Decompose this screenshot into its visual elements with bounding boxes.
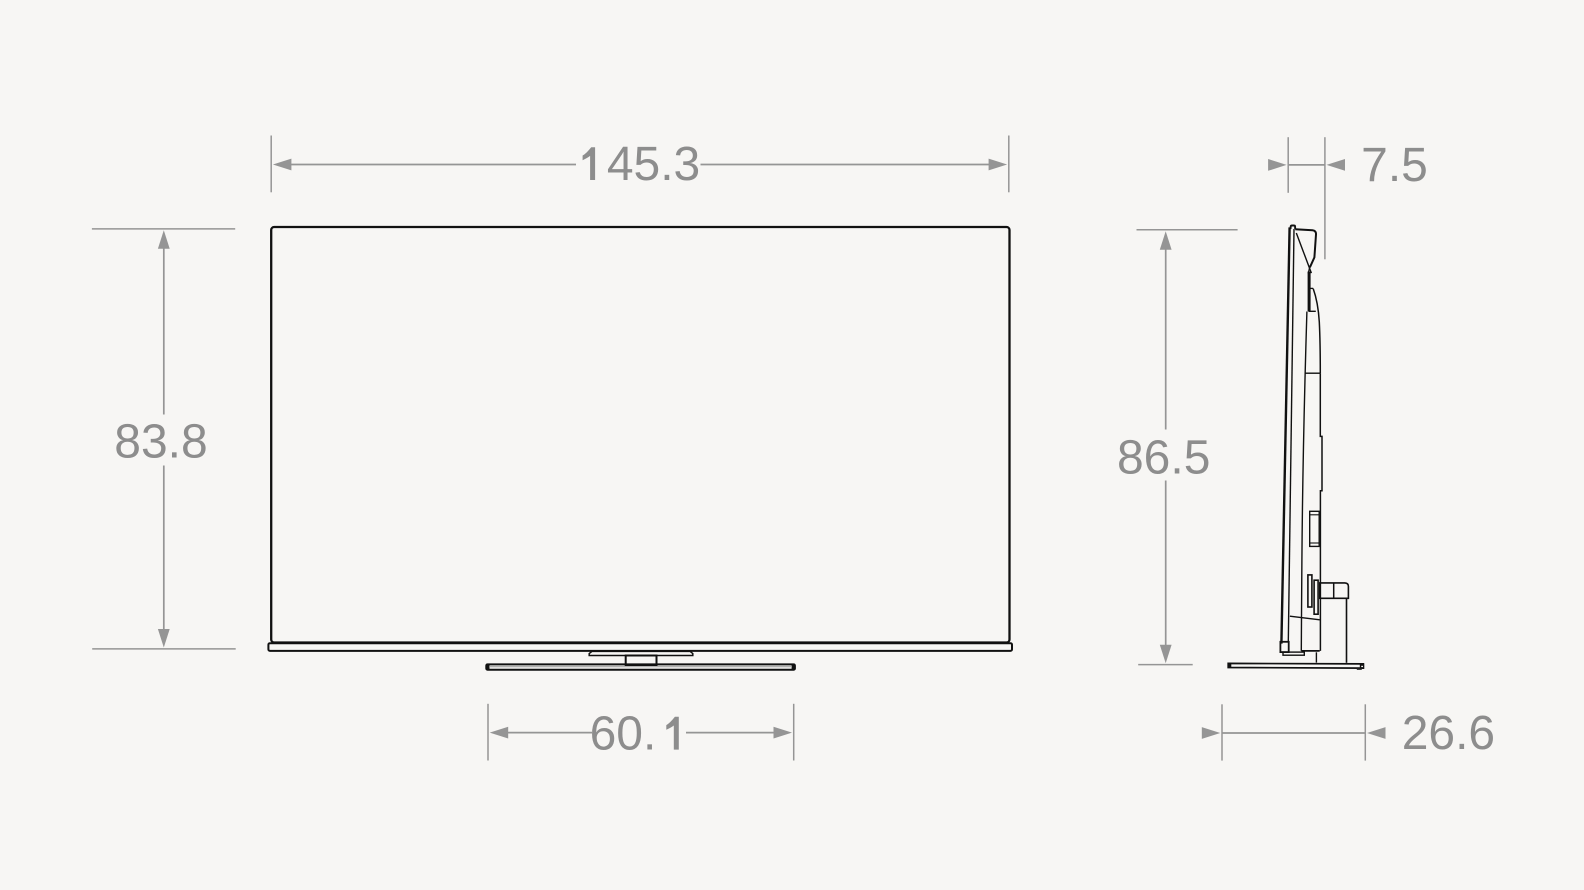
svg-text:26.6: 26.6 — [1402, 707, 1495, 760]
svg-text:7.5: 7.5 — [1361, 139, 1428, 192]
svg-text:83.8: 83.8 — [114, 416, 207, 469]
svg-text:45.3: 45.3 — [607, 138, 700, 191]
svg-text:60.: 60. — [590, 708, 657, 761]
svg-text:86.5: 86.5 — [1117, 431, 1210, 484]
